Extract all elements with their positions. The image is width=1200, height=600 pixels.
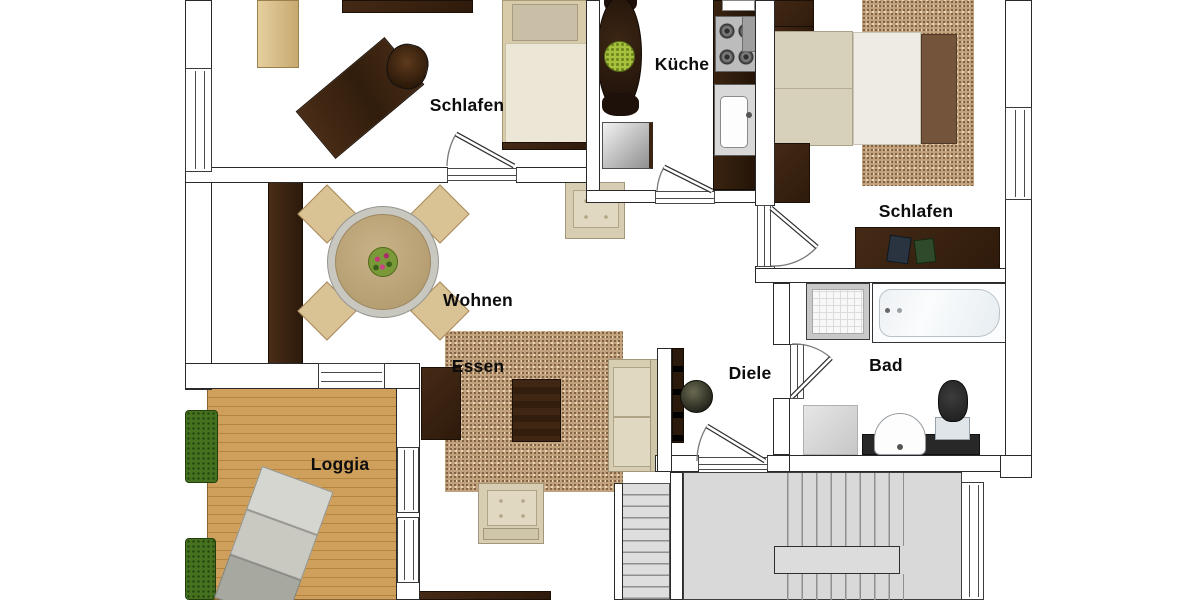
table-centerpiece-flowers: [368, 247, 398, 277]
planter-box-top: [185, 410, 218, 483]
door-bedroom2: [771, 208, 817, 266]
wardrobe-dark: [342, 0, 473, 13]
range-hood: [722, 0, 755, 11]
dresser-item-2: [914, 238, 937, 264]
fridge: [602, 122, 653, 169]
label-wohnen-line: Wohnen: [443, 289, 513, 311]
window-loggia-lower: [397, 517, 419, 583]
stair-landing: [774, 546, 900, 574]
washing-machine: [803, 405, 858, 455]
coffee-table: [512, 379, 561, 442]
door-sill-bathroom: [790, 344, 804, 399]
sideboard-bottom: [418, 591, 551, 600]
table-plant: [604, 41, 635, 72]
wall-living-diele: [657, 348, 672, 472]
main-staircase: [683, 472, 962, 600]
window-loggia-upper: [397, 447, 419, 513]
wall-kitchen-bed2-upper: [755, 0, 775, 206]
wall-kitchen-bottom-right: [713, 190, 760, 203]
wall-bottom-diele-right: [767, 455, 790, 472]
label-diele: Diele: [729, 363, 772, 384]
wall-living-loggia-right: [384, 363, 420, 389]
wardrobe-light: [257, 0, 299, 68]
double-bed-blanket: [921, 34, 957, 144]
stair-flight-upper: [774, 473, 904, 546]
side-staircase: [622, 483, 670, 600]
double-bed-duvet: [853, 32, 921, 145]
single-bed-pillow: [512, 4, 578, 41]
planter-box-bottom: [185, 538, 216, 600]
wall-left-exterior: [185, 0, 212, 390]
kitchen-sink-basin: [720, 96, 748, 148]
sofa-cushion-1: [613, 367, 651, 417]
sideboard-left: [268, 180, 303, 364]
wall-bed1-kitchen: [586, 0, 600, 203]
door-entry: [697, 426, 765, 461]
toilet-seat: [938, 380, 968, 422]
wall-side-stair-left: [614, 483, 623, 600]
window-bedroom2-right: [1005, 107, 1032, 200]
sofa-cushion-2: [613, 417, 651, 467]
wall-bed1-bottom-left: [185, 167, 448, 183]
dresser-item-1: [886, 235, 912, 265]
bathtub-faucet: [885, 308, 890, 313]
armchair-bottom: [478, 483, 544, 544]
shower: [806, 283, 870, 340]
door-sill-bedroom2: [757, 205, 771, 267]
label-wohnen-essen: Wohnen Essen: [443, 245, 513, 421]
armchair-bottom-cushion: [487, 490, 537, 526]
door-sill-entry: [698, 457, 768, 470]
door-sill-bedroom1: [447, 168, 517, 181]
wall-bed2-bath: [755, 268, 1032, 283]
label-schlafen-2: Schlafen: [879, 201, 954, 222]
window-living-loggia: [318, 363, 385, 389]
label-essen-line: Essen: [443, 355, 513, 377]
door-kitchen: [657, 167, 712, 191]
wall-living-loggia-left: [185, 363, 319, 389]
shower-tray: [812, 289, 864, 334]
door-sill-kitchen: [655, 191, 715, 204]
wall-bath-left-upper: [773, 283, 790, 345]
wall-right-exterior: [1005, 0, 1032, 477]
bathtub: [872, 283, 1007, 343]
washbasin-faucet: [897, 444, 903, 450]
floor-plan: Schlafen Küche Schlafen Bad Diele Wohnen…: [0, 0, 1200, 600]
window-bedroom1-left: [185, 68, 212, 172]
wall-stairs-divider: [670, 472, 683, 600]
label-schlafen-1: Schlafen: [430, 95, 505, 116]
wall-bath-left-lower: [773, 398, 790, 455]
armchair-bottom-base: [483, 528, 539, 540]
wall-bottom-right-corner: [1000, 455, 1032, 478]
bathtub-basin: [879, 289, 1000, 337]
cooktop-panel: [742, 16, 756, 52]
window-stairwell: [961, 482, 984, 600]
bedroom2-wardrobe: [770, 143, 810, 203]
label-kueche: Küche: [655, 54, 709, 75]
single-bed-duvet: [505, 43, 587, 143]
single-bed-footboard: [502, 142, 590, 150]
kitchen-chair-bottom: [602, 93, 639, 116]
stair-flight-lower: [774, 574, 904, 600]
wall-bottom-bath: [789, 455, 1032, 472]
kitchen-faucet: [746, 112, 752, 118]
double-bed-pillows: [773, 31, 853, 146]
wall-kitchen-bottom-left: [586, 190, 656, 203]
label-bad: Bad: [869, 355, 903, 376]
label-loggia: Loggia: [311, 454, 370, 475]
hall-stool: [680, 380, 713, 413]
pillow-divider: [774, 88, 854, 89]
